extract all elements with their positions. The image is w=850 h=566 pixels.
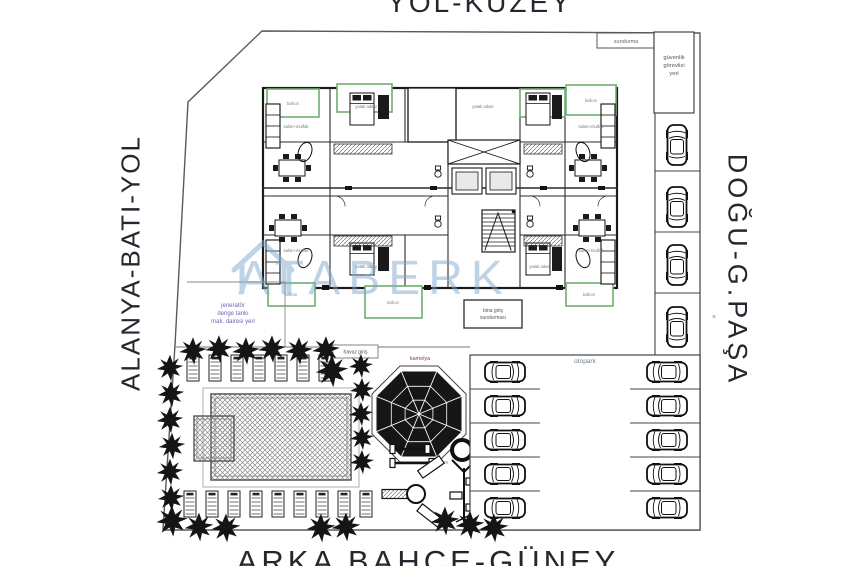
watermark-text: ATABERK: [238, 252, 511, 305]
kitchen-counter: [334, 144, 392, 154]
security-label-line1: güvenlik: [663, 55, 684, 61]
pool-entry-label: havuz giriş: [344, 350, 368, 356]
room-label-living: salon+mutfak: [283, 124, 309, 129]
kitchen-counter: [524, 236, 562, 246]
survey-marker: ×: [712, 314, 716, 321]
parking-label: otopark: [574, 358, 596, 365]
roof-terrace-room: [408, 88, 456, 142]
gazebo-label: kamelya: [410, 356, 431, 362]
canopy-label: sundurma: [614, 39, 639, 45]
site-plan-page: YOL-KUZEY ARKA BAHÇE-GÜNEY ALANYA-BATI-Y…: [0, 0, 850, 566]
kitchen-counter: [524, 144, 562, 154]
generator-label-line3: mak. dairesi yeri: [211, 319, 255, 325]
security-label-line2: görevlisi: [663, 63, 684, 69]
room-label-living: salon+mutfak: [578, 248, 604, 253]
sun-loungers-bottom: [184, 491, 372, 517]
entrance-label-line2: sundurması: [480, 315, 506, 321]
canopy-strip: sundurma: [597, 33, 655, 48]
site-plan-drawing: balkon balkon balkon balkon balkon balko…: [0, 0, 850, 566]
side-parking-strip: ×: [655, 113, 716, 355]
generator-label-line2: denge tankı: [217, 311, 249, 317]
room-label-bedroom: yatak odası: [529, 264, 550, 269]
sun-loungers-top: [187, 355, 331, 381]
room-label-bedroom: yatak odası: [472, 104, 493, 109]
balcony-label: balkon: [585, 98, 598, 103]
entrance-label-line1: bina giriş: [483, 308, 504, 314]
room-label-bedroom: yatak odası: [355, 104, 376, 109]
watermark: ATABERK: [234, 243, 511, 305]
pool-area: havuz giriş: [184, 345, 378, 517]
security-booth: güvenlik görevlisi yeri: [654, 32, 694, 113]
kids-pool: [194, 416, 234, 461]
playground: oyun alanı: [382, 440, 478, 527]
kitchen-counter: [334, 236, 392, 246]
balcony-label: balkon: [287, 101, 300, 106]
parking-lot: otopark: [470, 355, 700, 530]
pool-entry: havuz giriş: [333, 345, 378, 358]
staircase: [482, 210, 515, 252]
security-label-line3: yeri: [669, 71, 678, 77]
balcony-label: balkon: [583, 292, 596, 297]
room-label-living: salon+mutfak: [578, 124, 604, 129]
parked-car: [666, 125, 688, 347]
play-ring: [452, 440, 472, 460]
